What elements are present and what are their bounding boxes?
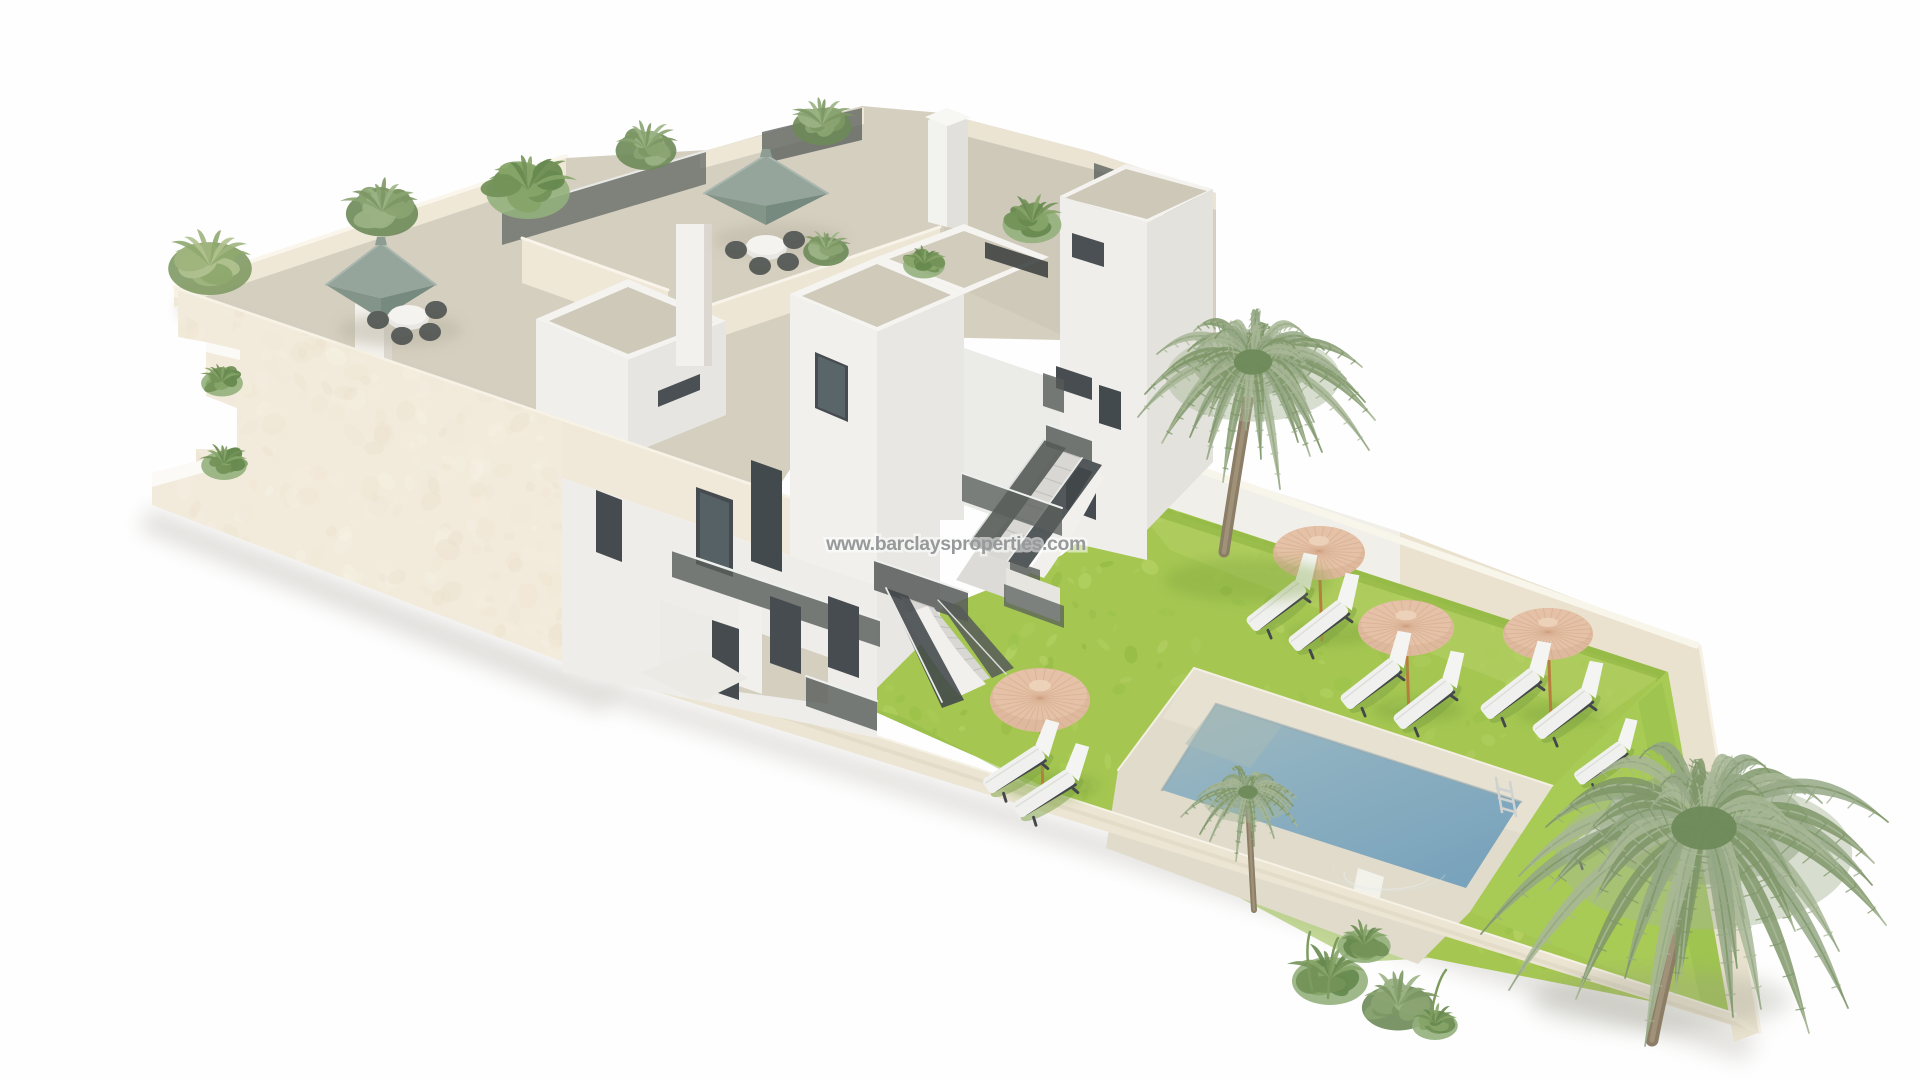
svg-text:www.barclaysproperties.com: www.barclaysproperties.com: [825, 533, 1086, 555]
